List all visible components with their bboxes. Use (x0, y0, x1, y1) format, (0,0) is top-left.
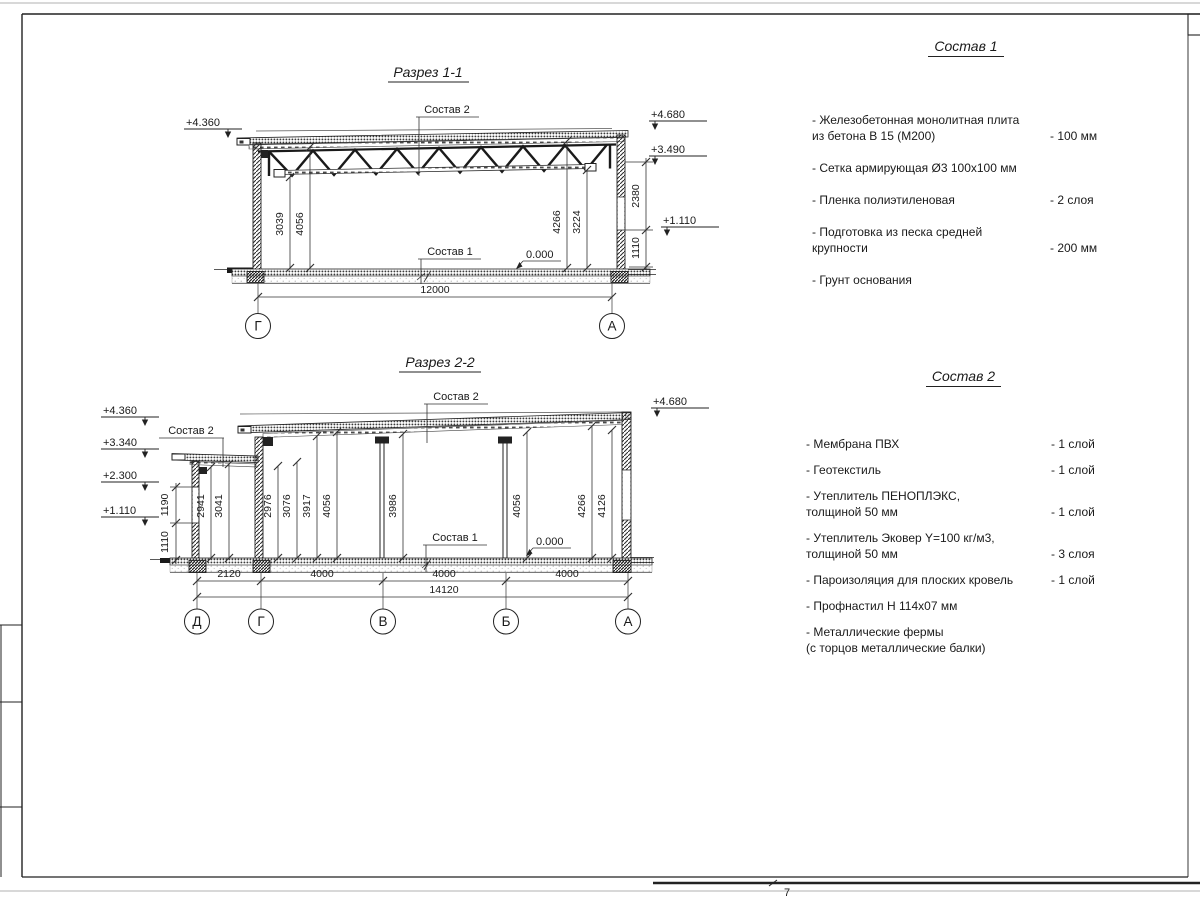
walls-2-2 (192, 412, 631, 560)
frame-left-margin-boxes (0, 625, 22, 877)
item-name-line2: толщиной 50 мм (806, 504, 1051, 520)
item-name-line2: (с торцов металлические балки) (806, 640, 1051, 656)
elev-1110: +1.110 (663, 215, 696, 227)
dim-2976: 2976 (262, 494, 274, 518)
elev-r-4680: +4.680 (653, 396, 687, 408)
wall-left (253, 143, 261, 270)
section-1-1-title: Разрез 1-1 (393, 64, 462, 80)
roof-2-2 (172, 412, 631, 474)
item-name: - Утеплитель ПЕНОПЛЭКС, (806, 488, 1051, 504)
footing-right (611, 272, 628, 283)
item-name: - Грунт основания (812, 272, 1050, 288)
dim-4000c: 4000 (555, 568, 579, 580)
floor-1-1 (214, 268, 656, 284)
label-sostav1-2-2: Состав 1 (432, 532, 478, 544)
list-item: - Металлические фермы(с торцов металличе… (806, 624, 1121, 656)
item-value: - 100 мм (1050, 128, 1120, 144)
window-opening (618, 197, 625, 230)
axis-a: А (623, 614, 632, 629)
label-sostav2-left: Состав 2 (168, 425, 214, 437)
axis-bubbles-1-1 (246, 314, 625, 339)
label-sostav2-top: Состав 2 (433, 391, 479, 403)
list-item: - Пленка полиэтиленовая - 2 слоя (812, 192, 1120, 208)
dim-4000a: 4000 (310, 568, 334, 580)
list-item: - Мембрана ПВХ - 1 слой (806, 436, 1121, 452)
dim-3041: 3041 (213, 494, 225, 518)
axis-v: В (378, 614, 387, 629)
dim-1110: 1110 (630, 237, 642, 259)
dim-4056a: 4056 (321, 494, 333, 518)
elev-l-4360: +4.360 (103, 405, 137, 417)
dim-3917: 3917 (301, 494, 313, 518)
axis-g-1-1: Г (254, 319, 262, 334)
item-name-line2: толщиной 50 мм (806, 546, 1051, 562)
elev-l-1110: +1.110 (103, 505, 136, 517)
dim-4266-2: 4266 (576, 494, 588, 518)
column-axis-v (380, 443, 384, 558)
elev-3490: +3.490 (651, 144, 685, 156)
label-zero-2-2: 0.000 (536, 536, 564, 548)
sostav2-list: Состав 2 - Мембрана ПВХ - 1 слой - Геоте… (806, 368, 1121, 666)
elev-4680: +4.680 (651, 109, 685, 121)
dim-1190: 1190 (159, 494, 171, 517)
dim-4056b: 4056 (511, 494, 523, 518)
item-value: - 3 слоя (1051, 546, 1121, 562)
list-item: - Подготовка из песка среднейкрупности -… (812, 224, 1120, 256)
dim-3076: 3076 (281, 494, 293, 518)
leaders-2-2 (159, 404, 571, 572)
axis-b: Б (502, 614, 511, 629)
dim-2120: 2120 (217, 568, 241, 580)
dim-total-14120: 14120 (429, 584, 458, 596)
item-name: - Пароизоляция для плоских кровель (806, 572, 1051, 588)
section-1-1: Разрез 1-1 (184, 64, 719, 339)
footing-g (253, 561, 270, 573)
footing-left (247, 272, 264, 283)
dim-4126: 4126 (596, 494, 608, 518)
sostav2-heading: Состав 2 (806, 368, 1121, 384)
dim-4000b: 4000 (432, 568, 456, 580)
item-value: - 1 слой (1051, 462, 1121, 478)
label-zero-1-1: 0.000 (526, 249, 554, 261)
item-name: - Сетка армирующая Ø3 100х100 мм (812, 160, 1050, 176)
list-item: - Железобетонная монолитная плитаиз бето… (812, 112, 1120, 144)
item-value: - 1 слой (1051, 504, 1121, 520)
dim-4056: 4056 (294, 212, 306, 236)
item-name: - Железобетонная монолитная плита (812, 112, 1050, 128)
column-axis-b (503, 443, 507, 558)
label-sostav1-1-1: Состав 1 (427, 246, 473, 258)
dim-2380: 2380 (630, 184, 642, 208)
list-item: - Пароизоляция для плоских кровель - 1 с… (806, 572, 1121, 588)
list-item: - Профнастил Н 114х07 мм (806, 598, 1121, 614)
elev-l-2300: +2.300 (103, 470, 137, 482)
dim-4266: 4266 (551, 210, 563, 234)
sand-bed (232, 276, 650, 283)
axis-g: Г (257, 614, 265, 629)
section-2-2-title: Разрез 2-2 (405, 354, 475, 370)
item-value: - 1 слой (1051, 436, 1121, 452)
item-value: - 1 слой (1051, 572, 1121, 588)
item-value: - 200 мм (1050, 240, 1120, 256)
elev-4360: +4.360 (186, 117, 220, 129)
elev-l-3340: +3.340 (103, 437, 137, 449)
item-name: - Утеплитель Эковер Y=100 кг/м3, (806, 530, 1051, 546)
sostav1-list: Состав 1 - Железобетонная монолитная пли… (812, 38, 1120, 304)
roof-1-1 (237, 129, 628, 152)
dim-1110-2: 1110 (159, 531, 171, 553)
item-name: - Металлические фермы (806, 624, 1051, 640)
list-item: - Утеплитель Эковер Y=100 кг/м3,толщиной… (806, 530, 1121, 562)
sostav1-heading: Состав 1 (812, 38, 1120, 54)
dim-3224: 3224 (571, 210, 583, 234)
sand-bed-2 (170, 565, 652, 572)
dim-3986: 3986 (387, 494, 399, 518)
dim-2941: 2941 (195, 494, 207, 518)
label-sostav2-1-1: Состав 2 (424, 104, 470, 116)
page-number: 7 (784, 887, 790, 899)
item-name: - Профнастил Н 114х07 мм (806, 598, 1051, 614)
footing-a (613, 561, 631, 573)
item-name-line2: крупности (812, 240, 1050, 256)
dim-3039: 3039 (274, 212, 286, 236)
axis-a-1-1: А (607, 319, 616, 334)
item-name: - Мембрана ПВХ (806, 436, 1051, 452)
item-value: - 2 слоя (1050, 192, 1120, 208)
section-2-2: Разрез 2-2 (101, 354, 709, 634)
window-right (623, 470, 631, 520)
item-name: - Геотекстиль (806, 462, 1051, 478)
list-item: - Сетка армирующая Ø3 100х100 мм (812, 160, 1120, 176)
elevation-marks-1-1: +4.360 +4.680 +3.490 +1.110 (184, 109, 719, 236)
item-name: - Подготовка из песка средней (812, 224, 1050, 240)
item-name: - Пленка полиэтиленовая (812, 192, 1050, 208)
list-item: - Геотекстиль - 1 слой (806, 462, 1121, 478)
frame-corner-box (1188, 14, 1200, 35)
list-item: - Утеплитель ПЕНОПЛЭКС,толщиной 50 мм - … (806, 488, 1121, 520)
footing-d (189, 561, 206, 573)
dim-span-12000: 12000 (420, 284, 449, 296)
item-name-line2: из бетона В 15 (М200) (812, 128, 1050, 144)
list-item: - Грунт основания (812, 272, 1120, 288)
axis-d: Д (192, 614, 201, 629)
roof-edge-beam-annex (172, 454, 185, 460)
axis-bubbles-2-2 (185, 609, 641, 634)
